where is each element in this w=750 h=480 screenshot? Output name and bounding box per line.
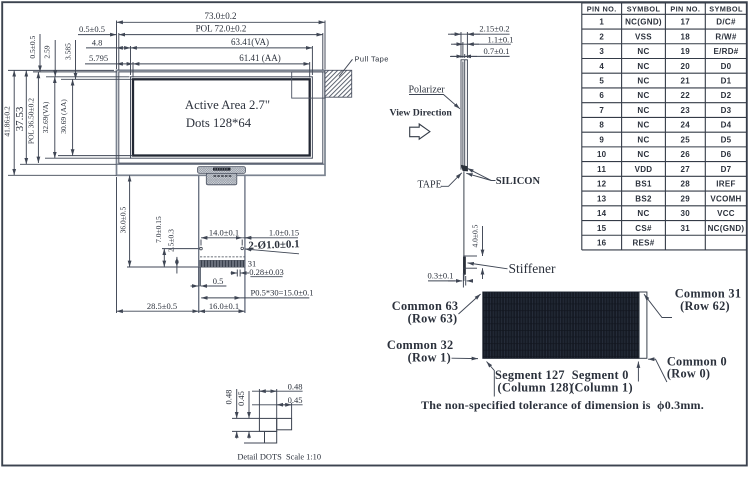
svg-text:D0: D0 xyxy=(721,62,732,71)
svg-text:0.45: 0.45 xyxy=(288,395,303,405)
svg-text:BS1: BS1 xyxy=(635,180,652,189)
svg-text:13: 13 xyxy=(597,194,607,203)
svg-text:6: 6 xyxy=(599,91,604,100)
svg-text:NC(GND): NC(GND) xyxy=(625,18,662,27)
svg-text:SYMBOL: SYMBOL xyxy=(709,4,743,13)
svg-text:24: 24 xyxy=(681,121,691,130)
svg-text:RES#: RES# xyxy=(632,239,654,248)
svg-text:2.59: 2.59 xyxy=(43,45,52,58)
svg-text:D5: D5 xyxy=(721,135,732,144)
svg-text:0.5±0.5: 0.5±0.5 xyxy=(79,24,105,34)
svg-text:D1: D1 xyxy=(721,77,732,86)
svg-text:VSS: VSS xyxy=(635,32,652,41)
svg-text:VCC: VCC xyxy=(717,209,735,218)
svg-text:0.5±0.5: 0.5±0.5 xyxy=(28,36,37,59)
svg-text:0.7±0.1: 0.7±0.1 xyxy=(484,46,510,56)
svg-text:The non-specified tolerance of: The non-specified tolerance of dimension… xyxy=(421,398,704,412)
svg-text:16.0±0.1: 16.0±0.1 xyxy=(209,301,239,311)
svg-text:0.3±0.1: 0.3±0.1 xyxy=(428,270,454,280)
svg-text:3.585: 3.585 xyxy=(63,43,72,60)
svg-text:7.0±0.15: 7.0±0.15 xyxy=(154,216,163,243)
svg-text:P0.5*30=15.0±0.1: P0.5*30=15.0±0.1 xyxy=(251,288,314,298)
svg-text:Pull Tape: Pull Tape xyxy=(355,55,389,64)
svg-text:0.5: 0.5 xyxy=(213,276,224,286)
svg-text:23: 23 xyxy=(681,106,691,115)
svg-text:Dots 128*64: Dots 128*64 xyxy=(186,116,252,130)
svg-text:7: 7 xyxy=(599,106,604,115)
svg-text:26: 26 xyxy=(681,150,691,159)
svg-text:IREF: IREF xyxy=(716,180,735,189)
svg-text:CS#: CS# xyxy=(635,224,652,233)
svg-text:D7: D7 xyxy=(721,165,732,174)
svg-text:21: 21 xyxy=(681,77,691,86)
svg-text:15: 15 xyxy=(597,224,607,233)
svg-text:22: 22 xyxy=(681,91,691,100)
svg-text:PIN NO.: PIN NO. xyxy=(670,4,700,13)
svg-text:0.48: 0.48 xyxy=(288,381,303,391)
svg-text:SILICON: SILICON xyxy=(496,176,541,187)
svg-text:NC: NC xyxy=(637,135,649,144)
svg-text:D3: D3 xyxy=(721,106,732,115)
svg-text:14.0±0.1: 14.0±0.1 xyxy=(209,228,239,238)
svg-text:(Row 0): (Row 0) xyxy=(667,367,710,381)
svg-text:0.28±0.03: 0.28±0.03 xyxy=(249,267,283,277)
svg-text:Detail DOTS Scale 1:10: Detail DOTS Scale 1:10 xyxy=(237,452,321,461)
svg-text:1.1±0.1: 1.1±0.1 xyxy=(488,34,514,44)
svg-text:11: 11 xyxy=(597,165,606,174)
svg-text:12: 12 xyxy=(597,180,607,189)
svg-text:2.15±0.2: 2.15±0.2 xyxy=(479,24,509,34)
svg-text:37.53: 37.53 xyxy=(14,106,26,131)
svg-text:View Direction: View Direction xyxy=(390,107,453,118)
svg-text:D/C#: D/C# xyxy=(716,18,736,27)
svg-text:R/W#: R/W# xyxy=(715,32,736,41)
svg-text:4: 4 xyxy=(599,62,604,71)
svg-text:2.5±0.3: 2.5±0.3 xyxy=(166,229,175,252)
svg-text:D6: D6 xyxy=(721,150,732,159)
svg-text:NC: NC xyxy=(637,62,649,71)
svg-text:SYMBOL: SYMBOL xyxy=(627,4,661,13)
svg-text:10: 10 xyxy=(597,150,607,159)
svg-text:1: 1 xyxy=(599,18,604,27)
svg-text:0.45: 0.45 xyxy=(236,391,246,406)
svg-text:28.5±0.5: 28.5±0.5 xyxy=(147,301,177,311)
svg-text:NC: NC xyxy=(637,121,649,130)
svg-text:2: 2 xyxy=(599,32,604,41)
svg-text:41.86±0.2: 41.86±0.2 xyxy=(3,106,12,137)
svg-text:31: 31 xyxy=(681,224,691,233)
svg-text:36.0±0.5: 36.0±0.5 xyxy=(118,206,127,233)
svg-text:73.0±0.2: 73.0±0.2 xyxy=(205,11,237,21)
svg-text:(Column 128): (Column 128) xyxy=(498,381,574,395)
svg-text:9: 9 xyxy=(599,135,604,144)
svg-text:17: 17 xyxy=(681,18,691,27)
svg-text:Active Area 2.7": Active Area 2.7" xyxy=(185,98,270,112)
svg-text:POL 36.50±0.2: POL 36.50±0.2 xyxy=(27,98,36,144)
svg-text:32.69(VA): 32.69(VA) xyxy=(41,101,50,133)
svg-text:3: 3 xyxy=(599,47,604,56)
svg-text:8: 8 xyxy=(599,121,604,130)
svg-text:PIN NO.: PIN NO. xyxy=(587,4,617,13)
svg-text:NC: NC xyxy=(637,47,649,56)
svg-text:D2: D2 xyxy=(721,91,732,100)
svg-text:30: 30 xyxy=(681,209,691,218)
svg-text:POL 72.0±0.2: POL 72.0±0.2 xyxy=(196,24,247,34)
svg-text:25: 25 xyxy=(681,135,691,144)
svg-text:0.48: 0.48 xyxy=(224,390,234,405)
svg-text:16: 16 xyxy=(597,239,607,248)
svg-text:30.69 (AA): 30.69 (AA) xyxy=(59,99,68,134)
svg-text:14: 14 xyxy=(597,209,607,218)
svg-text:NC: NC xyxy=(637,150,649,159)
svg-text:1.0±0.15: 1.0±0.15 xyxy=(269,228,299,238)
svg-text:(Row 63): (Row 63) xyxy=(408,311,458,325)
svg-text:4.8: 4.8 xyxy=(92,38,103,48)
svg-text:NC: NC xyxy=(637,106,649,115)
svg-text:NC: NC xyxy=(637,77,649,86)
svg-text:(Row 62): (Row 62) xyxy=(680,299,730,313)
svg-text:19: 19 xyxy=(681,47,691,56)
svg-text:Stiffener: Stiffener xyxy=(509,261,556,276)
svg-text:NC: NC xyxy=(637,91,649,100)
svg-text:Polarizer: Polarizer xyxy=(409,85,446,96)
svg-text:VDD: VDD xyxy=(635,165,653,174)
svg-text:5.795: 5.795 xyxy=(89,53,108,63)
svg-text:E/RD#: E/RD# xyxy=(713,47,738,56)
svg-text:NC(GND): NC(GND) xyxy=(708,224,745,233)
svg-text:VCOMH: VCOMH xyxy=(710,194,741,203)
svg-text:27: 27 xyxy=(681,165,691,174)
svg-text:4.0±0.5: 4.0±0.5 xyxy=(470,224,479,247)
svg-text:20: 20 xyxy=(681,62,691,71)
svg-text:28: 28 xyxy=(681,180,691,189)
svg-text:5: 5 xyxy=(599,77,604,86)
svg-text:63.41(VA): 63.41(VA) xyxy=(231,37,269,47)
svg-text:(Row 1): (Row 1) xyxy=(408,350,451,364)
svg-text:(Column 1): (Column 1) xyxy=(570,381,633,395)
svg-text:61.41 (AA): 61.41 (AA) xyxy=(239,53,281,63)
svg-text:D4: D4 xyxy=(721,121,732,130)
svg-text:29: 29 xyxy=(681,194,691,203)
svg-text:NC: NC xyxy=(637,209,649,218)
svg-text:BS2: BS2 xyxy=(635,194,652,203)
svg-text:18: 18 xyxy=(681,32,691,41)
svg-text:TAPE: TAPE xyxy=(418,179,442,190)
